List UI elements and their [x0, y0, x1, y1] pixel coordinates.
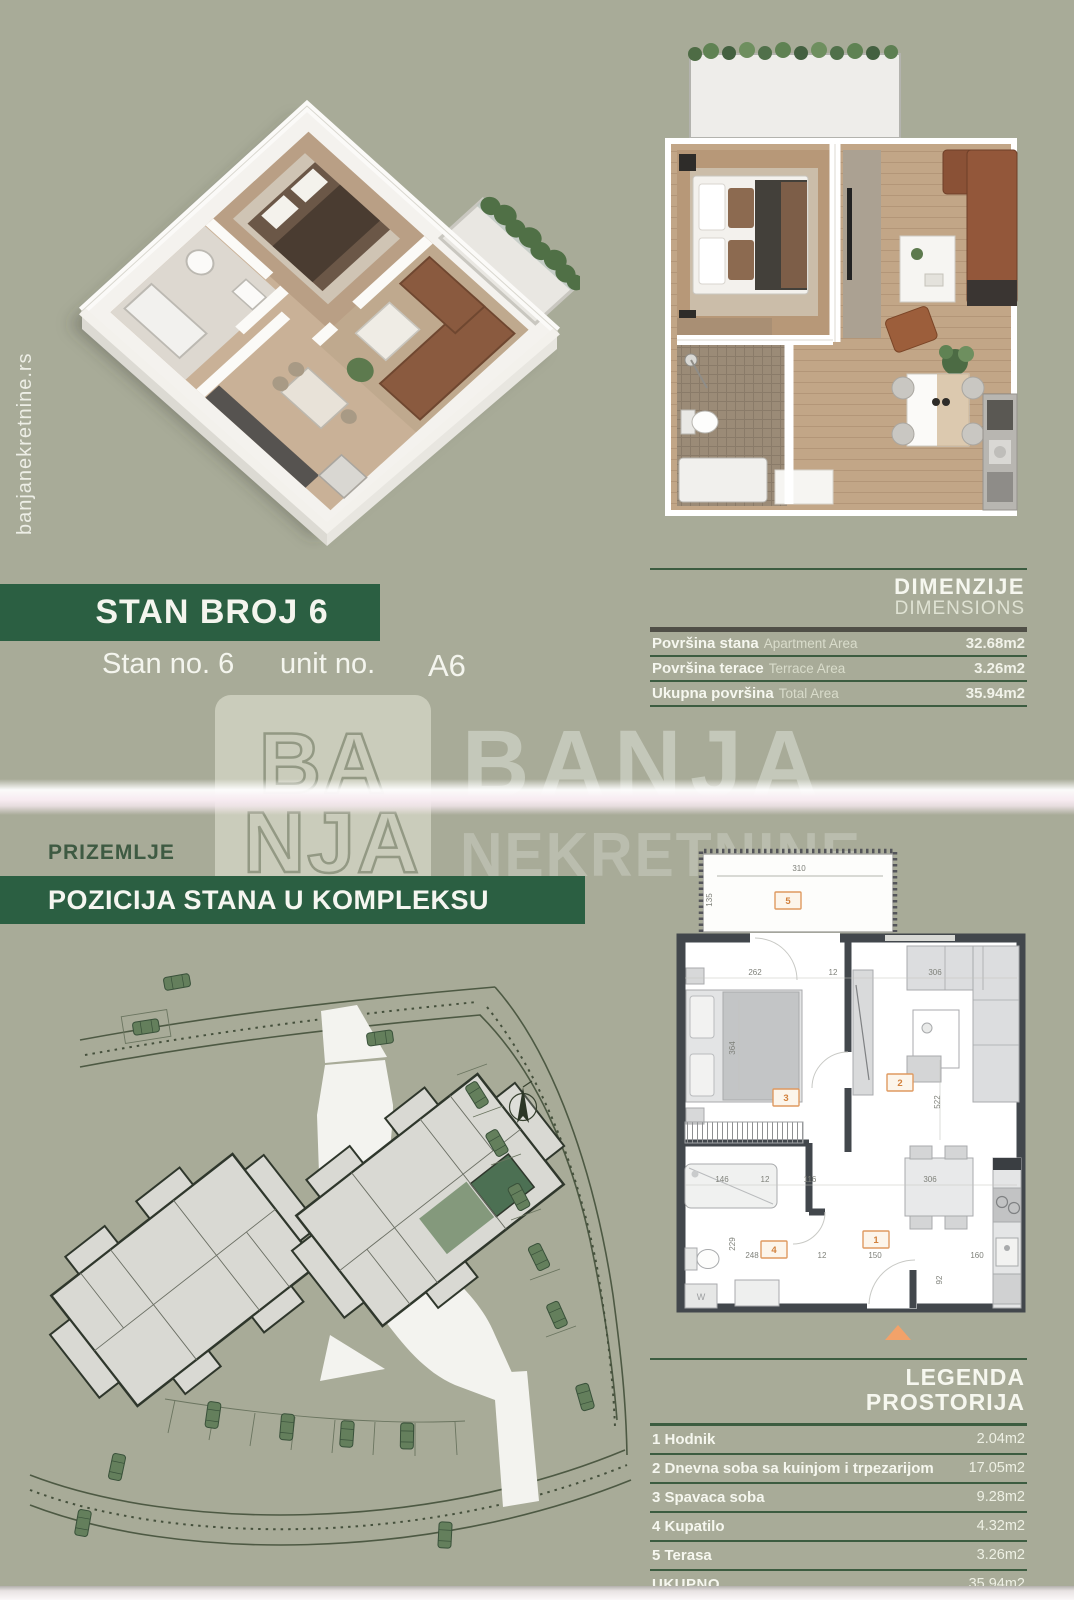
tub-drain: [692, 1171, 699, 1178]
unit-subtitle-left: Stan no. 6: [102, 648, 234, 681]
row-value: 32.68m2: [966, 635, 1025, 652]
row-label-sr: Površina terace: [652, 660, 764, 677]
pillow-plan: [690, 996, 714, 1038]
gloss-band: [0, 779, 1074, 815]
floor-label: PRIZEMLJE: [48, 841, 175, 865]
speaker-box: [679, 154, 696, 171]
legend-title-line1: LEGENDA: [650, 1365, 1025, 1390]
row-label-sr: Površina stana: [652, 635, 759, 652]
legend-table: LEGENDA PROSTORIJA 1 Hodnik 2.04m2 2 Dne…: [650, 1358, 1027, 1600]
legend-value: 4.32m2: [977, 1518, 1025, 1534]
dim-label: 135: [705, 893, 714, 907]
legend-value: 9.28m2: [977, 1489, 1025, 1505]
legend-row: 3 Spavaca soba 9.28m2: [650, 1484, 1027, 1513]
sofa-plan-right: [973, 946, 1019, 1102]
dimensions-header: DIMENZIJE DIMENSIONS: [650, 570, 1027, 627]
floor-plan-graphic: 310 135: [655, 840, 1035, 1345]
row-label: Ukupna površinaTotal Area: [652, 685, 839, 702]
logo-letters-line2: NJA: [243, 804, 421, 883]
dim-label: 92: [935, 1275, 944, 1284]
room-marker-1: 1: [873, 1235, 879, 1246]
site-plan: [25, 945, 635, 1570]
dim-label: 248: [745, 1251, 759, 1260]
legend-title-line2: PROSTORIJA: [650, 1390, 1025, 1415]
legend-row: 1 Hodnik 2.04m2: [650, 1426, 1027, 1455]
counter-dark: [993, 1158, 1021, 1170]
dim-label: 229: [728, 1237, 737, 1251]
pillow-white: [699, 184, 725, 230]
dim-label: 12: [829, 968, 838, 977]
table-plant: [911, 248, 923, 260]
position-banner: POZICIJA STANA U KOMPLEKSU: [0, 876, 585, 924]
dim-label: 262: [748, 968, 762, 977]
wardrobe-plan: [685, 1122, 803, 1143]
unit-number-banner: STAN BROJ 6: [0, 584, 380, 641]
pillow-white: [699, 238, 725, 284]
tv-screen: [847, 188, 852, 280]
row-label-en: Terrace Area: [769, 661, 846, 676]
building-left: [25, 1122, 350, 1437]
table-decor: [932, 398, 940, 406]
legend-label: 2 Dnevna soba sa kuinjom i trpezarijom: [652, 1460, 934, 1477]
row-label: Površina teraceTerrace Area: [652, 660, 845, 677]
table-decor: [942, 398, 950, 406]
table-row: Površina stanaApartment Area 32.68m2: [650, 632, 1027, 657]
dining-chair: [962, 377, 984, 399]
unit-code: A6: [428, 648, 466, 684]
dim-label: 12: [818, 1251, 827, 1260]
fridge-plan: [993, 1274, 1021, 1304]
sink-plan: [996, 1238, 1018, 1266]
legend-row: 5 Terasa 3.26m2: [650, 1542, 1027, 1571]
decor-plan: [922, 1023, 932, 1033]
dim-label: 306: [928, 968, 942, 977]
legend-value: 2.04m2: [977, 1431, 1025, 1447]
legend-label: 5 Terasa: [652, 1547, 712, 1564]
toilet-plan: [697, 1250, 719, 1269]
legend-label: 1 Hodnik: [652, 1431, 715, 1448]
row-label: Površina stanaApartment Area: [652, 635, 858, 652]
dim-label: 146: [715, 1175, 729, 1184]
apartment-3d-render: [52, 66, 580, 550]
dim-label: 364: [728, 1041, 737, 1055]
table-row: Površina teraceTerrace Area 3.26m2: [650, 657, 1027, 682]
chair-plan: [945, 1216, 967, 1229]
chair-plan: [945, 1146, 967, 1159]
dim-label: 12: [761, 1175, 770, 1184]
dim-label: 160: [970, 1251, 984, 1260]
washer-label: W: [697, 1292, 706, 1302]
dim-label: 310: [792, 864, 806, 873]
coffee-table-top: [900, 236, 955, 302]
dining-chair: [962, 423, 984, 445]
table-book: [925, 274, 943, 286]
chair-plan: [910, 1146, 932, 1159]
bottom-gloss-band: [0, 1586, 1074, 1600]
dim-label: 306: [923, 1175, 937, 1184]
row-value: 35.94m2: [966, 685, 1025, 702]
dim-label: 116: [804, 1175, 817, 1184]
bathtub-top: [679, 458, 767, 502]
row-label-en: Total Area: [779, 686, 839, 701]
row-label-sr: Ukupna površina: [652, 685, 774, 702]
entrance-marker-icon: [885, 1325, 911, 1340]
dining-chair: [892, 377, 914, 399]
sofa-dark-end: [967, 280, 1017, 306]
bed-blanket-brown: [781, 182, 807, 288]
legend-value: 17.05m2: [969, 1460, 1025, 1476]
room-marker-4: 4: [771, 1245, 777, 1256]
toilet-bowl: [692, 411, 718, 433]
row-label-en: Apartment Area: [764, 636, 858, 651]
room-marker-2: 2: [897, 1078, 902, 1089]
table-row-total: Ukupna površinaTotal Area 35.94m2: [650, 682, 1027, 707]
pillow-plan: [690, 1054, 714, 1096]
dimensions-subtitle: DIMENSIONS: [650, 599, 1025, 620]
chair-plan: [910, 1216, 932, 1229]
dimensions-table: DIMENZIJE DIMENSIONS Površina stanaApart…: [650, 568, 1027, 707]
bath-cabinet: [735, 1280, 779, 1306]
flyer-page: banjanekretnine.rs: [0, 0, 1074, 1600]
sink-bowl: [994, 446, 1006, 458]
appliance-top: [987, 472, 1013, 502]
legend-value: 3.26m2: [977, 1547, 1025, 1563]
unit-subtitle-right: unit no.: [280, 648, 375, 681]
room-marker-3: 3: [783, 1093, 788, 1104]
legend-label: 4 Kupatilo: [652, 1518, 725, 1535]
stove-top: [987, 400, 1013, 430]
dining-table-plan: [905, 1158, 973, 1216]
room-marker-5: 5: [785, 896, 791, 907]
nightstand: [686, 968, 704, 984]
dimensions-title: DIMENZIJE: [650, 575, 1025, 599]
floor-plan-2d: 310 135: [655, 840, 1035, 1345]
3d-render-graphic: [52, 66, 580, 550]
row-value: 3.26m2: [974, 660, 1025, 677]
topdown-graphic: [655, 42, 1027, 524]
dim-label: 150: [868, 1251, 882, 1260]
legend-row: 2 Dnevna soba sa kuinjom i trpezarijom 1…: [650, 1455, 1027, 1484]
legend-row: 4 Kupatilo 4.32m2: [650, 1513, 1027, 1542]
website-vertical-label: banjanekretnine.rs: [14, 295, 37, 535]
faucet: [1004, 1245, 1010, 1251]
terrace-top: [690, 54, 900, 138]
dim-label: 522: [933, 1095, 942, 1109]
site-plan-graphic: [25, 945, 635, 1570]
pillow-brown: [728, 188, 754, 228]
legend-header: LEGENDA PROSTORIJA: [650, 1360, 1027, 1423]
apartment-topdown-render: [655, 42, 1027, 524]
pillow-brown: [728, 240, 754, 280]
legend-label: 3 Spavaca soba: [652, 1489, 765, 1506]
toilet-tank-plan: [685, 1248, 697, 1270]
bath-mat: [775, 470, 833, 504]
dining-chair: [892, 423, 914, 445]
